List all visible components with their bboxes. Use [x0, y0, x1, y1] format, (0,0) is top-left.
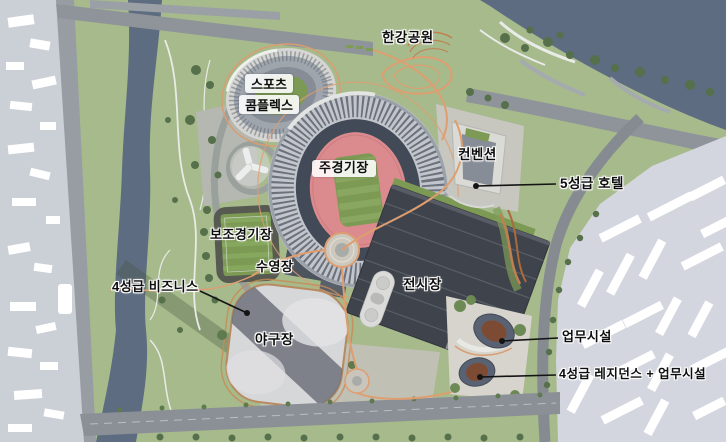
bush — [217, 330, 227, 340]
label-hotel-5star: 5성급 호텔 — [560, 176, 624, 192]
hotel-5star-dot — [473, 183, 479, 189]
office-facility-dot — [499, 338, 505, 344]
masterplan-aerial-view: 한강공원 스포츠 콤플렉스 주경기장 컨벤션 5성급 호텔 보조경기장 수영장 … — [0, 0, 726, 442]
label-sports-complex-line2: 콤플렉스 — [239, 95, 299, 114]
label-hangang-park: 한강공원 — [382, 30, 434, 46]
label-residence-4star: 4성급 레지던스 + 업무시설 — [559, 367, 706, 381]
residence-4star-dot — [477, 374, 483, 380]
label-convention: 컨벤션 — [458, 147, 497, 163]
business-4star-dot — [244, 310, 250, 316]
label-business-4star: 4성급 비즈니스 — [112, 280, 199, 295]
label-office-facility: 업무시설 — [562, 330, 612, 345]
label-exhibition-hall: 전시장 — [403, 277, 442, 293]
label-auxiliary-stadium: 보조경기장 — [210, 228, 272, 243]
label-main-stadium: 주경기장 — [312, 160, 376, 177]
label-swimming-pool: 수영장 — [256, 260, 293, 275]
label-sports-complex: 스포츠 콤플렉스 — [230, 74, 308, 114]
label-baseball-stadium: 야구장 — [255, 332, 294, 348]
label-sports-complex-line1: 스포츠 — [245, 74, 293, 93]
